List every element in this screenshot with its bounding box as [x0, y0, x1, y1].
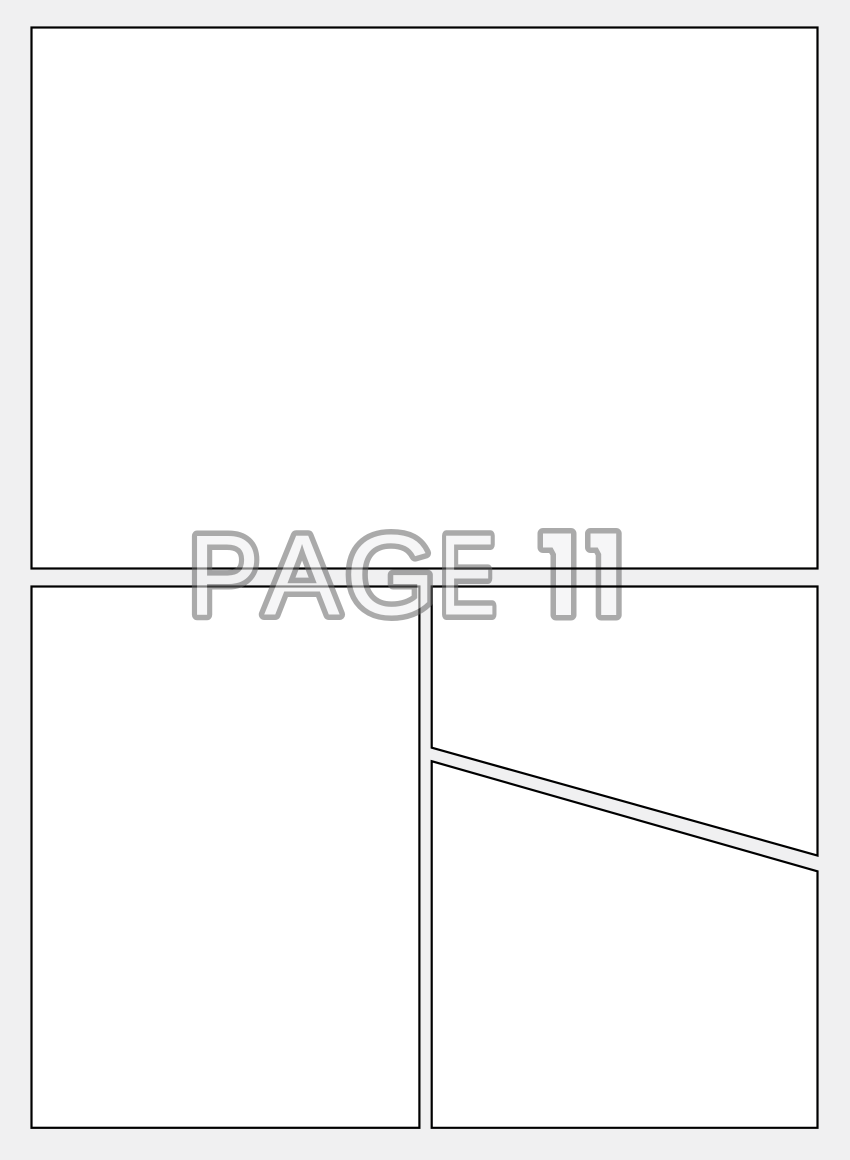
svg-text:E: E	[439, 512, 496, 639]
svg-text:P: P	[188, 511, 260, 639]
svg-text:A: A	[264, 512, 340, 639]
svg-text:G: G	[345, 511, 436, 639]
